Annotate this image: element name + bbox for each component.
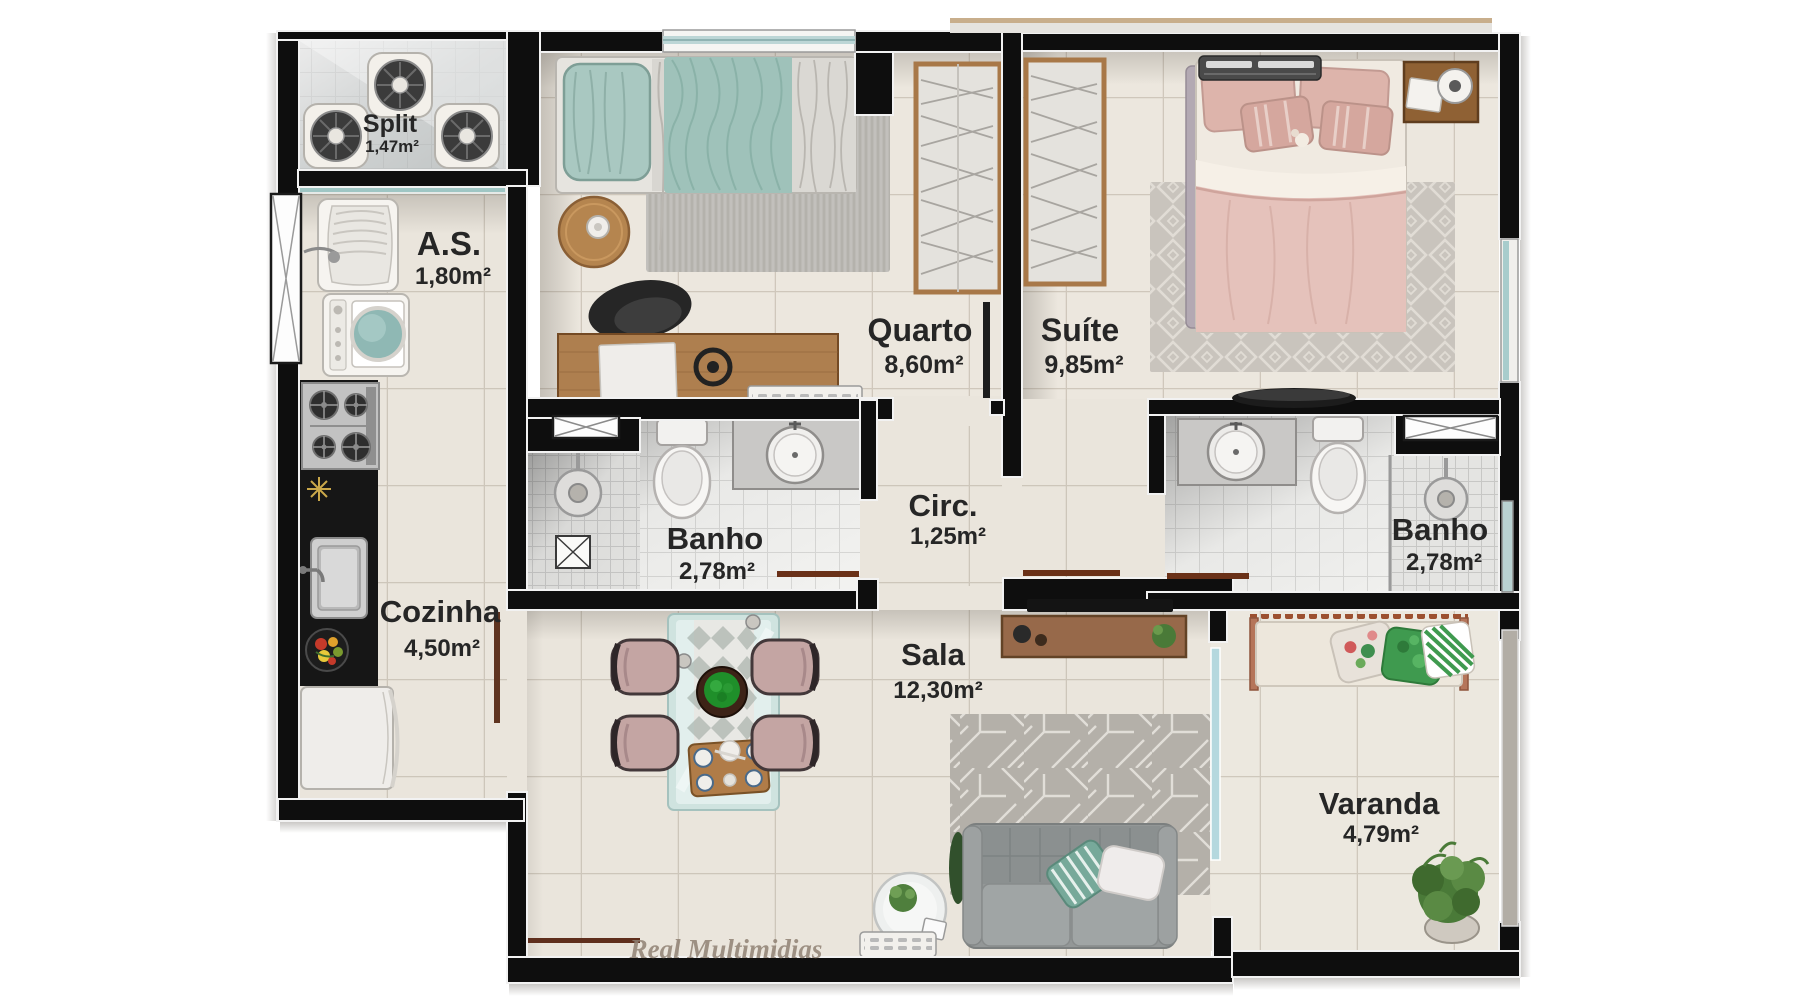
svg-text:2,78m²: 2,78m²	[1406, 549, 1482, 576]
svg-text:1,25m²: 1,25m²	[910, 523, 986, 550]
svg-text:1,80m²: 1,80m²	[415, 263, 491, 290]
svg-text:Circ.: Circ.	[909, 488, 978, 523]
svg-text:Banho: Banho	[1392, 512, 1488, 547]
svg-text:9,85m²: 9,85m²	[1044, 351, 1123, 379]
svg-text:Split: Split	[363, 110, 418, 138]
svg-text:4,79m²: 4,79m²	[1343, 821, 1419, 848]
svg-text:Quarto: Quarto	[868, 312, 973, 348]
svg-text:Real Multimidias: Real Multimidias	[629, 934, 823, 964]
svg-text:A.S.: A.S.	[417, 225, 481, 262]
svg-text:Cozinha: Cozinha	[380, 594, 501, 629]
svg-text:Banho: Banho	[667, 521, 763, 556]
svg-text:Varanda: Varanda	[1319, 786, 1440, 821]
svg-text:2,78m²: 2,78m²	[679, 558, 755, 585]
svg-text:8,60m²: 8,60m²	[884, 351, 963, 379]
svg-text:Suíte: Suíte	[1041, 312, 1119, 348]
svg-text:1,47m²: 1,47m²	[365, 137, 419, 156]
svg-text:12,30m²: 12,30m²	[893, 677, 982, 704]
svg-text:Sala: Sala	[901, 637, 966, 672]
svg-text:4,50m²: 4,50m²	[404, 635, 480, 662]
